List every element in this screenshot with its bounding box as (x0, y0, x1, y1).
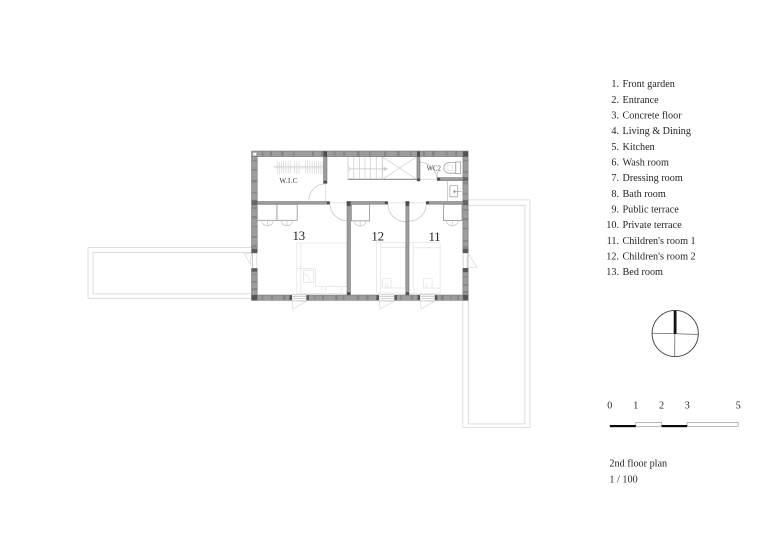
svg-text:10.: 10. (606, 220, 619, 231)
svg-text:5.: 5. (611, 142, 619, 153)
svg-text:Children's room 2: Children's room 2 (623, 252, 696, 263)
svg-text:12: 12 (371, 229, 383, 244)
svg-text:1.: 1. (611, 79, 619, 90)
svg-text:Public terrace: Public terrace (623, 205, 680, 216)
svg-text:0: 0 (607, 401, 612, 412)
svg-text:Dressing room: Dressing room (623, 173, 683, 184)
svg-text:8.: 8. (611, 189, 619, 200)
svg-text:Entrance: Entrance (623, 95, 660, 106)
svg-text:13.: 13. (606, 267, 619, 278)
svg-text:3: 3 (685, 401, 690, 412)
svg-text:Front garden: Front garden (623, 79, 675, 90)
svg-text:11.: 11. (607, 236, 619, 247)
svg-text:11: 11 (428, 229, 440, 244)
svg-text:13: 13 (292, 228, 304, 243)
svg-text:7.: 7. (611, 173, 619, 184)
svg-text:WC2: WC2 (427, 165, 442, 172)
svg-text:1: 1 (633, 401, 638, 412)
svg-text:Kitchen: Kitchen (623, 142, 655, 153)
svg-text:W.I.C: W.I.C (279, 176, 297, 185)
svg-text:2.: 2. (611, 95, 619, 106)
svg-text:Bath room: Bath room (623, 189, 666, 200)
svg-text:Wash room: Wash room (623, 158, 670, 169)
svg-text:Private terrace: Private terrace (623, 220, 683, 231)
svg-text:Concrete floor: Concrete floor (623, 111, 683, 122)
svg-text:Bed room: Bed room (623, 267, 664, 278)
svg-text:2nd floor plan: 2nd floor plan (609, 459, 667, 470)
svg-text:9.: 9. (611, 205, 619, 216)
svg-text:Children's room 1: Children's room 1 (623, 236, 696, 247)
svg-text:1 / 100: 1 / 100 (609, 474, 637, 485)
svg-text:5: 5 (736, 401, 741, 412)
svg-text:12.: 12. (606, 252, 619, 263)
svg-text:3.: 3. (611, 111, 619, 122)
svg-text:2: 2 (659, 401, 664, 412)
svg-text:Living & Dining: Living & Dining (623, 126, 691, 137)
svg-text:6.: 6. (611, 158, 619, 169)
svg-text:4.: 4. (611, 126, 619, 137)
